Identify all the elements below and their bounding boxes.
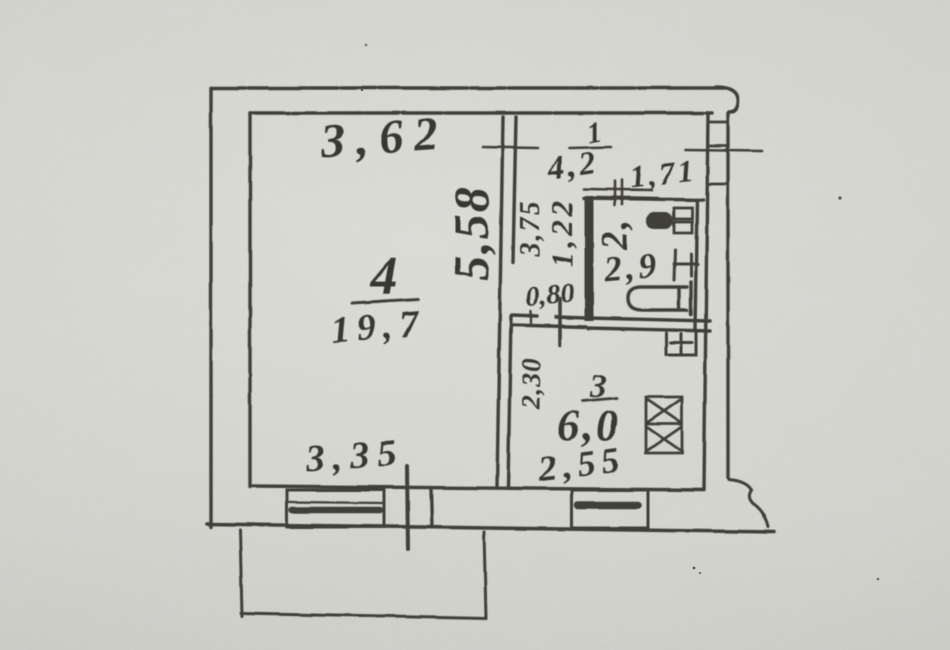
svg-text:3,62: 3,62: [318, 107, 450, 169]
svg-text:4: 4: [370, 246, 398, 306]
svg-text:0,80: 0,80: [524, 278, 576, 313]
svg-text:1,71: 1,71: [628, 153, 698, 195]
svg-text:3,35: 3,35: [303, 432, 405, 481]
svg-text:3: 3: [589, 368, 607, 405]
svg-text:19,7: 19,7: [329, 302, 427, 352]
svg-text:4,2: 4,2: [545, 145, 601, 188]
svg-text:2,9: 2,9: [601, 246, 661, 290]
svg-text:2,30: 2,30: [516, 357, 546, 409]
svg-text:1,22: 1,22: [544, 197, 579, 267]
svg-text:5,58: 5,58: [443, 185, 499, 281]
svg-text:2,: 2,: [594, 218, 636, 252]
svg-text:3,75: 3,75: [515, 200, 546, 258]
